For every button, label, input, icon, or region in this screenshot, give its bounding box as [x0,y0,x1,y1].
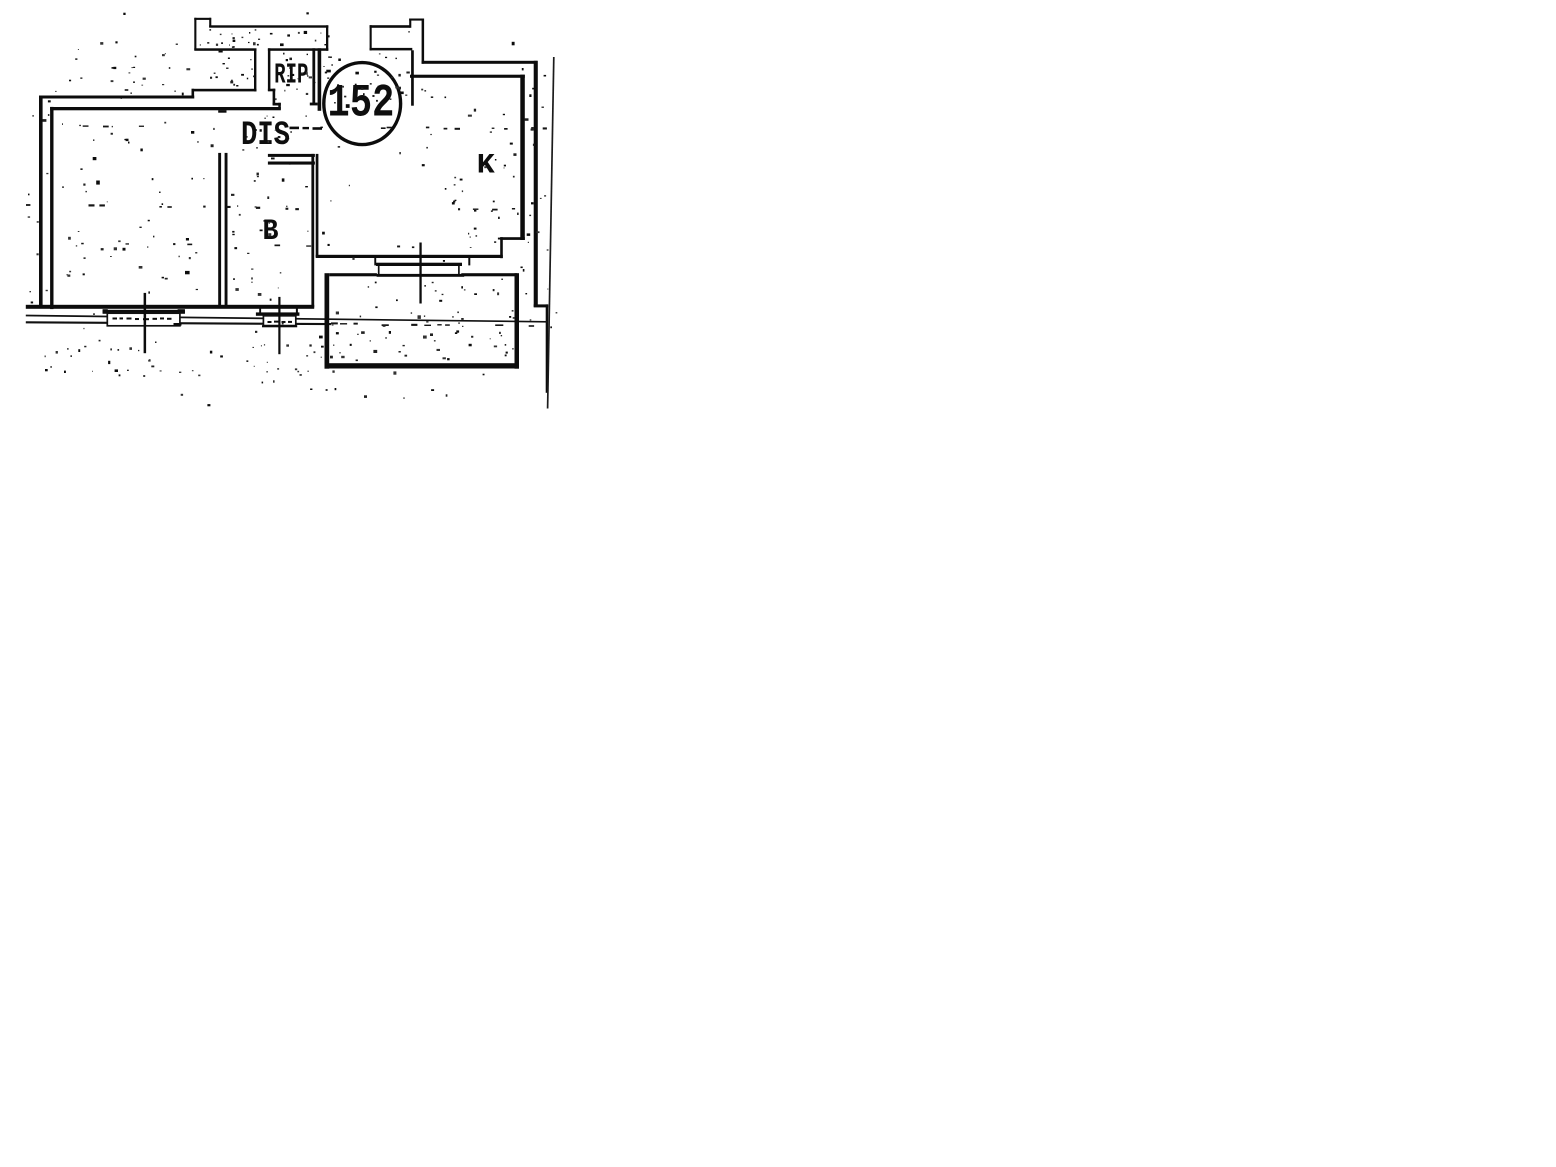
svg-text:RIP: RIP [274,59,308,92]
svg-text:DIS: DIS [241,117,290,155]
svg-text:B: B [263,214,279,248]
svg-text:K: K [477,151,495,182]
